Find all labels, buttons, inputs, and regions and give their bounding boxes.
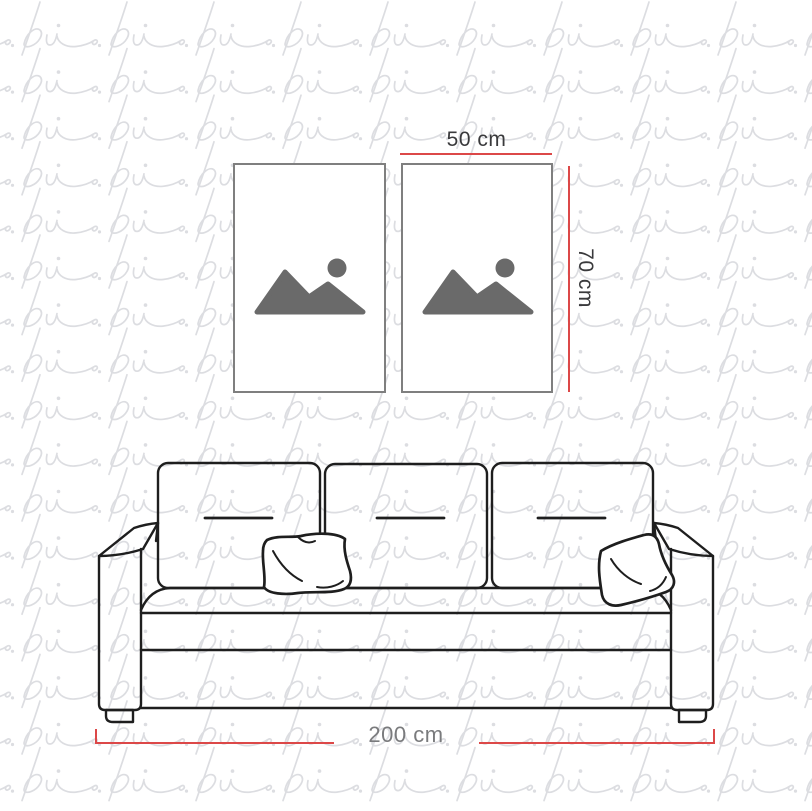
frame-width-label: 50 cm bbox=[400, 129, 553, 151]
sofa-width-label: 200 cm bbox=[306, 724, 506, 746]
frame-height-label: 70 cm bbox=[574, 248, 596, 308]
dimension-lines bbox=[0, 0, 812, 811]
mockup-canvas: 50 cm 70 cm 200 cm bbox=[0, 0, 812, 811]
